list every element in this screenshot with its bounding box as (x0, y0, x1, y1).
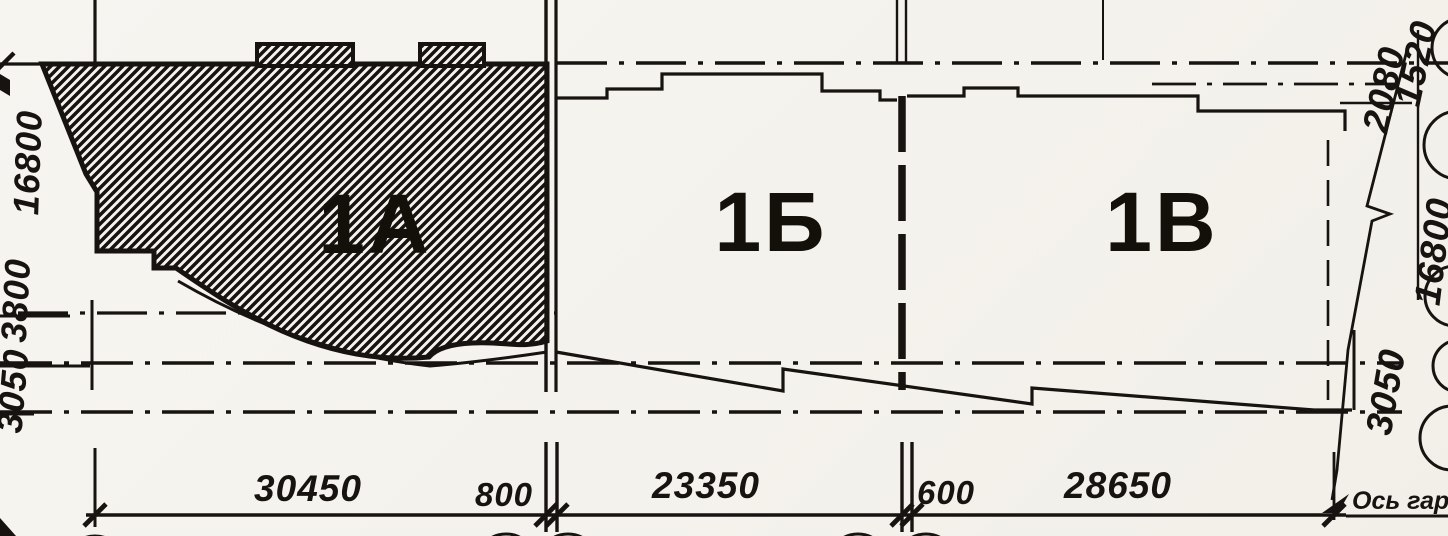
block-1b-shape (556, 74, 897, 100)
block-1v-top-edge (907, 88, 1345, 131)
dim-right-16800: 16800 (1407, 195, 1448, 307)
dim-800: 800 (475, 476, 533, 513)
dim-right-1520: 1520 (1387, 17, 1445, 110)
dim-right-3050: 3050 (1358, 346, 1413, 438)
block-1a-parapet-1 (257, 44, 353, 66)
dim-left-3050: 3050 (0, 347, 37, 434)
site-plan-drawing: 1А 1Б 1В 30450 800 23350 600 28650 16800… (0, 0, 1448, 536)
dim-left-16800: 16800 (5, 109, 50, 215)
dim-left-3800: 3800 (0, 257, 38, 343)
axis-note: Ось гар (1346, 487, 1448, 516)
block-1a-label: 1А (318, 177, 431, 271)
boundary-1a-1b (546, 0, 556, 392)
dim-28650: 28650 (1063, 465, 1172, 506)
leader-arrowhead (1322, 494, 1349, 513)
dim-600: 600 (917, 474, 975, 511)
block-1v-label: 1В (1105, 175, 1218, 269)
dim-30450: 30450 (254, 468, 362, 509)
terrain-line (556, 352, 1352, 410)
axis-note-text: Ось гар (1352, 487, 1448, 515)
boundary-1b-1v (897, 0, 906, 390)
block-1a-parapet-2 (420, 44, 484, 66)
block-1b-top-edge (556, 74, 897, 100)
block-1b-label: 1Б (714, 175, 827, 269)
site-plan-scan: 1А 1Б 1В 30450 800 23350 600 28650 16800… (0, 0, 1448, 536)
block-1a-shape (42, 44, 547, 366)
dim-23350: 23350 (651, 465, 760, 506)
